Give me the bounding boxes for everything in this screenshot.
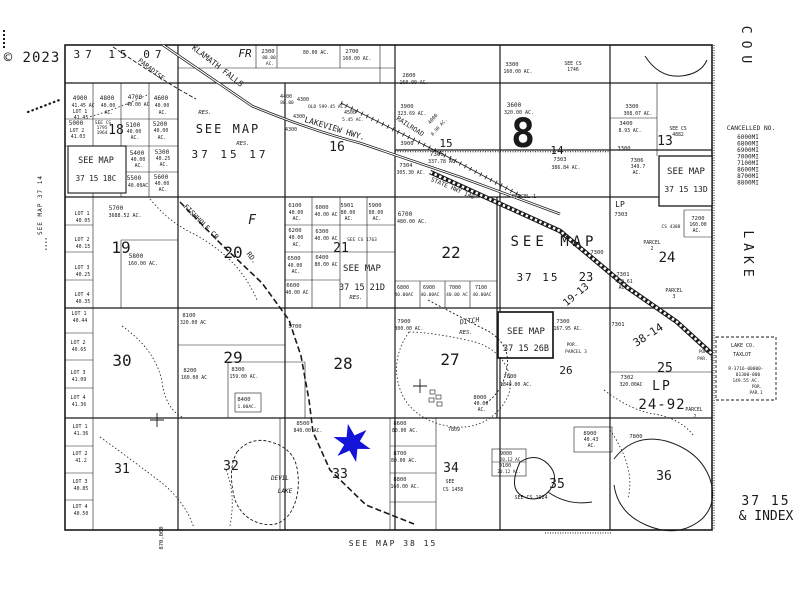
section-number: 8 (511, 111, 535, 157)
parcel-number: 5000 (69, 120, 84, 127)
section-number: 29 (223, 348, 242, 367)
section-number: 13 (657, 134, 673, 149)
lot-label: LOT 1 (72, 424, 87, 430)
parcel-number: 7000 (449, 285, 461, 291)
survey-cross-marks (150, 379, 427, 427)
parcel-number: 4300 (297, 97, 309, 103)
acreage-label: 323.69 AC. (398, 111, 427, 117)
coordinate-label: 870,000 (159, 526, 165, 549)
acreage-label: 80.00 (369, 210, 384, 216)
acreage-label: 40.00 (155, 181, 170, 187)
parcel-number: 8300 (231, 367, 244, 373)
acreage-label: 40.15 (76, 244, 91, 250)
parcel-number: 5100 (126, 122, 141, 129)
parcel-number: 6500 (287, 256, 300, 262)
parcel-number: 7303 (553, 157, 566, 163)
parcel-number: 7301 (616, 272, 629, 278)
section-number: 33 (332, 467, 348, 482)
acreage-label: AC. (266, 61, 274, 67)
acreage-label: 80.00 AC (314, 262, 337, 268)
acreage-label: 20.12 AC. (497, 469, 520, 475)
acreage-label: 40.00 AC (446, 292, 468, 298)
water-name: LAKE (278, 488, 293, 495)
road-name: FISHHOLE CR. (182, 203, 223, 244)
road-name: RD. (245, 250, 259, 265)
parcel-number: 8500 (296, 421, 309, 427)
parcel-number: 4700 (128, 94, 143, 101)
acreage-label: 386.84 AC. (552, 165, 581, 171)
see-map-ref: 37 15 18C (76, 174, 117, 183)
parcel-number: 5600 (154, 174, 169, 181)
parcel-number: 5901 (340, 203, 353, 209)
acreage-label: 80.00 (280, 100, 294, 106)
acreage-label: 40.00 AC (285, 290, 308, 296)
county-label: COU (738, 26, 753, 70)
lake-label: LAKE (740, 230, 755, 281)
see-map-ref: 37 15 17 (192, 148, 269, 161)
see-map-ref: 37 15 26B (503, 344, 549, 354)
survey-ref: CS 1458 (443, 487, 463, 493)
acreage-label: AC. (131, 135, 140, 141)
lot-label: LOT 4 (74, 292, 89, 298)
res-label: RES. (198, 110, 211, 116)
cancelled-title: CANCELLED NO. (727, 125, 775, 132)
acreage-label: 41.36 (72, 402, 87, 408)
road-name: RAILROAD (395, 114, 426, 138)
lot-label: LOT 4 (72, 504, 87, 510)
acreage-label: 40.35 (76, 299, 91, 305)
section-number: 14 (550, 144, 564, 157)
acreage-label: AC. (693, 228, 702, 234)
parcel-number: 7305 (430, 151, 445, 158)
acreage-label: 80.00 (262, 55, 276, 61)
acreage-label: AC. (158, 135, 167, 141)
acreage-label: 80.00 AC. (303, 50, 329, 56)
see-map-left-margin: SEE MAP 37 14 (37, 175, 44, 235)
see-map-ref: 37 15 (516, 271, 559, 284)
parcel-number: 5400 (130, 150, 145, 157)
lot-label: LOT 4 (70, 395, 85, 401)
taxlot-box-line: 149.55 AC. (732, 378, 759, 384)
acreage-label: 429.61 (615, 279, 632, 285)
section-number: 24 (659, 250, 676, 266)
acreage-label: 160.00 AC. (400, 80, 429, 86)
parcel-number: 5500 (127, 175, 142, 182)
parcel-number: 7301 (611, 322, 624, 328)
acreage-label: 160.00 (689, 222, 706, 228)
taxlot-box-line: TAXLOT (733, 352, 751, 358)
acreage-label: 40.00 (127, 129, 142, 135)
parcel-label: 2 (651, 246, 654, 252)
parcel-number: 6000 (315, 205, 328, 211)
lot-label: LOT 3 (70, 370, 85, 376)
parcel-number: 5800 (129, 253, 144, 260)
survey-ref: 4882 (672, 132, 684, 138)
parcel-number: 7200 (691, 216, 704, 222)
parcel-number: 7100 (475, 285, 487, 291)
section-number: 34 (443, 461, 459, 476)
parcel-number: 4800 (100, 95, 115, 102)
parcel-label: PARCEL 3 (565, 349, 587, 355)
acreage-label: 40.00 (155, 103, 170, 109)
acreage-label: 40.00 (101, 103, 116, 109)
map-ref-diagonal: 38-14 (631, 320, 666, 349)
see-map-ref: 37 15 21D (339, 283, 385, 293)
water-name: DEVIL (270, 475, 289, 482)
acreage-label: 167.95 AC. (554, 326, 583, 332)
parcel-number: 3400 (619, 121, 632, 127)
map-number-header: 37 15 07 (74, 48, 167, 61)
acreage-label: AC. (478, 407, 487, 413)
parcel-number: 5900 (368, 203, 381, 209)
parcel-number: 4300 (285, 127, 297, 133)
acreage-label: 40.05 (76, 218, 91, 224)
lot-label: LOT 1 (71, 311, 86, 317)
parcel-number: 3900 (400, 104, 413, 110)
survey-ref: 1746 (567, 67, 579, 73)
acreage-label: AC. (293, 216, 302, 222)
survey-ref: 1964 (97, 130, 108, 136)
section-number: 30 (112, 351, 131, 370)
parcel-number: 2700 (345, 49, 358, 55)
section-number: 22 (441, 243, 460, 262)
taxlot-box-line: POR. (752, 384, 762, 390)
acreage-label: 305.30 AC. (397, 170, 426, 176)
acreage-label: AC. (293, 242, 302, 248)
index-label-line1: 37 15 (741, 494, 790, 509)
parcel-number: 7300 (590, 250, 603, 256)
section-number: 35 (549, 477, 565, 492)
acreage-label: 41.2 (75, 458, 87, 464)
acreage-label: 160.00 AC. (504, 69, 533, 75)
acreage-label: AC. (159, 187, 168, 193)
parcel-label: POR. (567, 342, 578, 348)
acreage-label: AC. (345, 216, 354, 222)
parcel-number: 3900 (400, 141, 413, 147)
acreage-label: 40.00 (131, 157, 146, 163)
lot-label: LOT 3 (72, 479, 87, 485)
lp-label: LP (615, 200, 625, 209)
parcel-number: 5700 (109, 205, 124, 212)
acreage-label: 480.00 AC. (397, 219, 427, 225)
parcel-number: 7900 (397, 319, 410, 325)
location-star-marker[interactable] (334, 424, 371, 462)
acreage-label: AC. (135, 163, 144, 169)
survey-ref: SEE CS 1924 (514, 495, 547, 501)
parcel-number: 4900 (73, 95, 88, 102)
acreage-label: 40.00 (288, 263, 303, 269)
parcel-number: 6600 (286, 283, 299, 289)
acreage-label: 41.45 AC (71, 103, 94, 109)
water-name: DITCH (458, 316, 480, 327)
acreage-label: 1.00AC. (238, 404, 257, 410)
section-number: 16 (329, 140, 345, 155)
acreage-label: 40.00 AC (314, 212, 337, 218)
parcel-number: 4500 (344, 110, 356, 116)
taxlot-box-line: PAR.1 (750, 390, 763, 396)
parcel-number: 7800 (629, 434, 642, 440)
parcel-number: 6800 (397, 285, 409, 291)
acreage-label: AC. (160, 162, 169, 168)
assessor-map-page: © 202337 15 07SEE MAP 37 14COULAKECANCEL… (0, 0, 800, 600)
acreage-label: 3688.52 AC. (108, 213, 141, 219)
res-label: RES. (459, 330, 472, 336)
section-number: 23 (579, 270, 593, 284)
section-number: 32 (223, 459, 239, 474)
acreage-label: 80.00 (341, 210, 356, 216)
copyright: © 2023 (4, 50, 61, 66)
parcel-number: 6100 (288, 203, 301, 209)
lot-label: LOT 2 (72, 451, 87, 457)
parcel-number: 9100 (499, 463, 511, 469)
parcel-label: 3 (673, 294, 676, 300)
see-map-ref: 37 15 13D (664, 185, 708, 194)
parcel-number: 8200 (183, 368, 196, 374)
acreage-label: 40.00AC (421, 292, 440, 298)
acreage-label: AC. (292, 269, 301, 275)
see-map-ref: SEE MAP (507, 327, 546, 337)
acreage-label: 40.25 (156, 156, 171, 162)
acreage-label: 320.00 AC (180, 320, 206, 326)
acreage-label: 159.00 AC. (230, 374, 259, 380)
taxlot-box-line: LAKE CO. (731, 343, 755, 349)
parcel-number: 6400 (315, 255, 328, 261)
res-label: RES. (236, 141, 249, 147)
acreage-label: 337.78 AC. (428, 159, 458, 165)
acreage-label: 40.85 (74, 486, 89, 492)
acreage-label: 40.43 (584, 437, 599, 443)
parcel-number: 8000 (473, 395, 486, 401)
acreage-label: 40.00 (289, 235, 304, 241)
acreage-label: 40.00 AC (314, 236, 337, 242)
section-number: 31 (114, 462, 130, 477)
see-map-ref: SEE MAP (667, 167, 706, 177)
taxlot-box-line: 01300-000 (736, 372, 761, 378)
acreage-label: AC. (633, 170, 642, 176)
taxlot-box-line: R-3716-00000- (728, 366, 763, 372)
parcel-number: 6900 (423, 285, 435, 291)
section-number: 27 (440, 350, 459, 369)
map-labels-layer: © 202337 15 07SEE MAP 37 14COULAKECANCEL… (4, 26, 794, 550)
parcel-number: 7800 (503, 374, 516, 380)
acreage-label: 8.93 AC. (618, 128, 641, 134)
parcel-number: 5200 (153, 121, 168, 128)
see-map-ref: SEE MAP (510, 234, 597, 250)
acreage-label: 349.7 (631, 164, 646, 170)
acreage-label: 5.45 AC. (342, 117, 364, 123)
parcel-number: 5700 (288, 324, 301, 330)
section-number: 20 (223, 243, 242, 262)
parcel-label: PARCEL 1 (512, 194, 536, 200)
acreage-label: OLD 599.45 AC. (308, 104, 346, 110)
parcel-number: 3300 (625, 104, 638, 110)
acreage-label: AC. (159, 110, 168, 116)
acreage-label: 40.00 AC (126, 102, 149, 108)
lp-label: 24-92 (638, 397, 685, 413)
survey-ref: SEE CS 1763 (347, 237, 377, 243)
parcel-number: 6300 (315, 229, 328, 235)
parcel-number: 2800 (402, 73, 415, 79)
section-number: 26 (559, 364, 572, 377)
acreage-label: 40.44 (73, 318, 88, 324)
lot-label: LOT 3 (74, 265, 89, 271)
acreage-label: 41.03 (71, 134, 86, 140)
parcel-number: 8600 (393, 421, 406, 427)
lp-label: LP (652, 379, 672, 394)
acreage-label: AC. (373, 216, 382, 222)
parcel-number: 8400 (237, 397, 250, 403)
lot-label: LOT 1 (73, 109, 88, 115)
parcel-number: 4400 (280, 94, 292, 100)
road-name: FR (238, 47, 252, 60)
parcel-label: PARCEL (685, 407, 702, 413)
lot-label: LOT 2 (74, 237, 89, 243)
acreage-label: AC. (619, 285, 628, 291)
parcel-number: 6200 (288, 228, 301, 234)
parcel-number: 8700 (393, 451, 406, 457)
lot-label: LOT 2 (70, 128, 85, 134)
acreage-label: 80.00 AC. (391, 458, 417, 464)
section-number: 15 (439, 137, 452, 150)
acreage-label: 800.00 AC. (395, 326, 424, 332)
parcel-number: 8900 (583, 431, 596, 437)
acreage-label: 40.00 (154, 128, 169, 134)
see-map-ref: SEE MAP (196, 122, 261, 136)
acreage-label: 308.07 AC. (624, 111, 653, 117)
acreage-label: 40.00AC (395, 292, 414, 298)
section-number: 25 (657, 361, 673, 376)
parcel-number: 7809 (448, 427, 460, 433)
acreage-label: 160.00 AC. (343, 56, 372, 62)
acreage-label: 40.65 (72, 347, 87, 353)
building-cluster (429, 390, 442, 406)
parcel-number: 7303 (614, 212, 627, 218)
map-ref-diagonal: 19-13 (561, 281, 591, 309)
parcel-number: 4300 (293, 114, 305, 120)
cancelled-item: 8800MI (737, 180, 759, 187)
parcel-number: 4000 (427, 113, 440, 126)
parcel-number: 8800 (393, 477, 406, 483)
parcel-label: PARCEL (643, 240, 660, 246)
survey-ref: SEE (446, 479, 455, 485)
section-number: 21 (333, 241, 349, 256)
lot-label: LOT 1 (74, 211, 89, 217)
index-label-line2: & INDEX (739, 509, 794, 524)
parcel-number: 3600 (507, 102, 522, 109)
parcel-number: 9000 (500, 451, 512, 457)
parcel-label: PARCEL (665, 288, 682, 294)
acreage-label: 160.00 AC (181, 375, 207, 381)
survey-ref: SEE CS (564, 61, 581, 67)
map-canvas: © 202337 15 07SEE MAP 37 14COULAKECANCEL… (0, 0, 800, 600)
section-number: 28 (333, 354, 352, 373)
see-map-bottom: SEE MAP 38 15 (349, 539, 438, 548)
parcel-number: 3300 (617, 146, 630, 152)
acreage-label: 320.00 AC. (504, 110, 534, 116)
parcel-number: 6700 (398, 211, 413, 218)
parcel-label: PAR. 1 (697, 356, 713, 362)
acreage-label: 160.00 AC. (128, 261, 158, 267)
parcel-number: 3300 (505, 62, 518, 68)
parcel-number: 4600 (154, 95, 169, 102)
parcel-label: POR. (699, 349, 709, 355)
parcel-label: 2 (694, 414, 697, 420)
see-map-ref: SEE MAP (78, 156, 114, 166)
survey-ref: SEE CS (669, 126, 686, 132)
parcel-number: 2300 (261, 49, 274, 55)
survey-ref: CS 4388 (662, 224, 681, 230)
parcel-number: 7306 (630, 158, 643, 164)
acreage-label: 40.00 (289, 210, 304, 216)
acreage-label: 40.00AC (128, 183, 148, 189)
acreage-label: 80.00 AC. (392, 428, 418, 434)
lot-label: LOT 2 (70, 340, 85, 346)
parcel-number: 7300 (556, 319, 569, 325)
acreage-label: AC. (588, 443, 597, 449)
fishhole-creek-road (180, 202, 414, 524)
parcel-number: 5300 (155, 149, 170, 156)
acreage-label: 160.00 AC. (391, 484, 420, 490)
acreage-label: AC. (105, 110, 114, 116)
see-map-ref: SEE MAP (343, 264, 382, 274)
parcel-number: 7304 (399, 163, 413, 169)
acreage-label: 40.50 (74, 511, 89, 517)
acreage-label: 40.00AC (473, 292, 492, 298)
acreage-label: 320.00AC (619, 382, 642, 388)
acreage-label: 41.36 (74, 431, 89, 437)
acreage-label: 40.00 (474, 401, 489, 407)
section-number: 19 (111, 238, 130, 257)
parcel-number: 8100 (182, 313, 195, 319)
devil-lake-outline (231, 440, 298, 524)
acreage-label: 840.00 AC. (294, 428, 323, 434)
acreage-label: 41.09 (72, 377, 87, 383)
res-label: RES. (349, 295, 362, 301)
section-number: 36 (656, 469, 672, 484)
letter-f: F (248, 213, 257, 228)
parcel-number: 7302 (620, 375, 633, 381)
acreage-label: 40.25 (76, 272, 91, 278)
acreage-label: 1840.00 AC. (500, 382, 532, 388)
